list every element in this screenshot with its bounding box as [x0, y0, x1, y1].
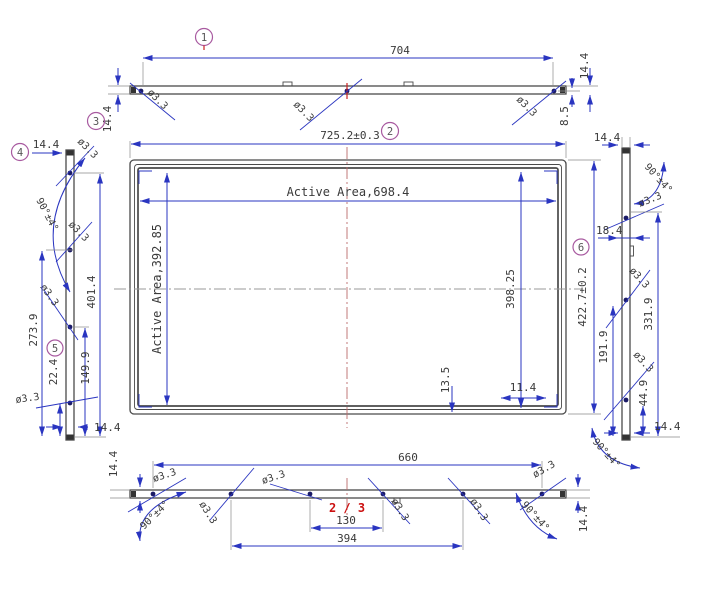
hole-dia-label: ø3.3: [196, 500, 218, 526]
hole-dia-label: ø3.3: [38, 282, 61, 308]
dim-bottom-right-thickness: 14.4: [577, 505, 590, 532]
cad-drawing-canvas: 704 1 ø3.3 ø3.3 ø3.3 14.4 8.5 14.4 3: [0, 0, 718, 596]
dim-right-bottom-thickness: 14.4: [654, 420, 681, 433]
page-indicator: 2 / 3: [329, 501, 365, 515]
dim-inner-height: 398.25: [504, 269, 517, 309]
dim-left-thickness: 14.4: [33, 138, 60, 151]
dim-hole3-height: 149.9: [79, 351, 92, 384]
dim-hole-offset-top: 18.4: [596, 224, 623, 237]
hole-dia-label: ø3.3: [631, 350, 655, 375]
hole-dia-label: ø3.3: [261, 469, 287, 487]
view-balloon-1-number: 1: [201, 32, 207, 44]
dim-corner-inset: 11.4: [510, 381, 537, 394]
view-balloon-6-number: 6: [578, 242, 584, 254]
view-balloon-4-number: 4: [17, 147, 23, 159]
front-view: 725.2±0.3 2 Active Area,698.4 Active Are…: [114, 123, 582, 429]
view-balloon-5-number: 5: [52, 343, 58, 355]
mounting-hole: [151, 492, 156, 497]
dim-bottom-left-thickness: 14.4: [107, 450, 120, 477]
dim-top-width: 704: [390, 44, 410, 57]
angle-label: 90°±4°: [590, 437, 622, 471]
hole-dia-label: ø3.3: [145, 87, 170, 112]
bottom-view: 660 130 394 2 / 3 ø3.3 ø3.3 ø3.3 ø3.3 ø3…: [107, 450, 590, 550]
dim-left-bottom-thickness: 14.4: [94, 421, 121, 434]
view-balloon-3-number: 3: [93, 116, 99, 128]
dim-span: 331.9: [642, 297, 655, 330]
hole-dia-label: ø3.3: [637, 191, 663, 210]
hole-dia-label: ø3.3: [514, 94, 539, 119]
right-side-view: 422.7±0.2 6 14.4 90°±4° ø3.3 ø3.3 ø3.3 1…: [568, 131, 681, 471]
angle-label: 90°±4°: [138, 499, 171, 532]
hole-dia-label: ø3.3: [15, 392, 40, 406]
panel-glass-edge: [138, 168, 558, 406]
dim-hole2-height: 191.9: [597, 330, 610, 363]
left-side-view: 4 14.4 90°±4° ø3.3 ø3.3 ø3.3 ø3.3 401.4 …: [12, 136, 121, 440]
cad-drawing-page: 704 1 ø3.3 ø3.3 ø3.3 14.4 8.5 14.4 3: [0, 0, 718, 596]
angle-label: 90°±4°: [33, 196, 60, 233]
dim-overall-width: 725.2±0.3: [320, 129, 380, 142]
dim-active-width: Active Area,698.4: [287, 185, 410, 199]
view-balloon-2-number: 2: [387, 126, 393, 138]
hole-dia-label: ø3.3: [388, 497, 410, 523]
dim-bottom-inset: 13.5: [439, 367, 452, 394]
dim-hole2-height: 273.9: [27, 313, 40, 346]
mounting-hole: [624, 398, 629, 403]
angle-label: 90°±4°: [519, 500, 551, 534]
hole-dia-label: ø3.3: [152, 467, 178, 485]
dim-top-right-thickness: 14.4: [578, 52, 591, 79]
top-view: 704 1 ø3.3 ø3.3 ø3.3 14.4 8.5 14.4 3: [88, 29, 599, 133]
dim-right-top-thickness: 14.4: [594, 131, 621, 144]
dim-overall-height: 422.7±0.2: [576, 267, 589, 327]
hole-dia-label: ø3.3: [467, 497, 489, 523]
hole-dia-label: ø3.3: [66, 219, 91, 244]
dim-pitch-outer: 394: [337, 532, 357, 545]
dim-hole4-height: 22.4: [47, 358, 60, 385]
hole-dia-label: ø3.3: [531, 459, 557, 481]
dim-pitch-inner: 130: [336, 514, 356, 527]
dim-hole3-height: 44.9: [637, 380, 650, 407]
dim-top-left-thickness: 14.4: [101, 105, 114, 132]
dim-hole1-height: 401.4: [85, 275, 98, 308]
dim-active-height: Active Area,392.85: [150, 224, 164, 354]
hole-dia-label: ø3.3: [75, 136, 100, 161]
dim-bottom-width: 660: [398, 451, 418, 464]
dim-hole-edge-offset: 8.5: [558, 106, 571, 126]
